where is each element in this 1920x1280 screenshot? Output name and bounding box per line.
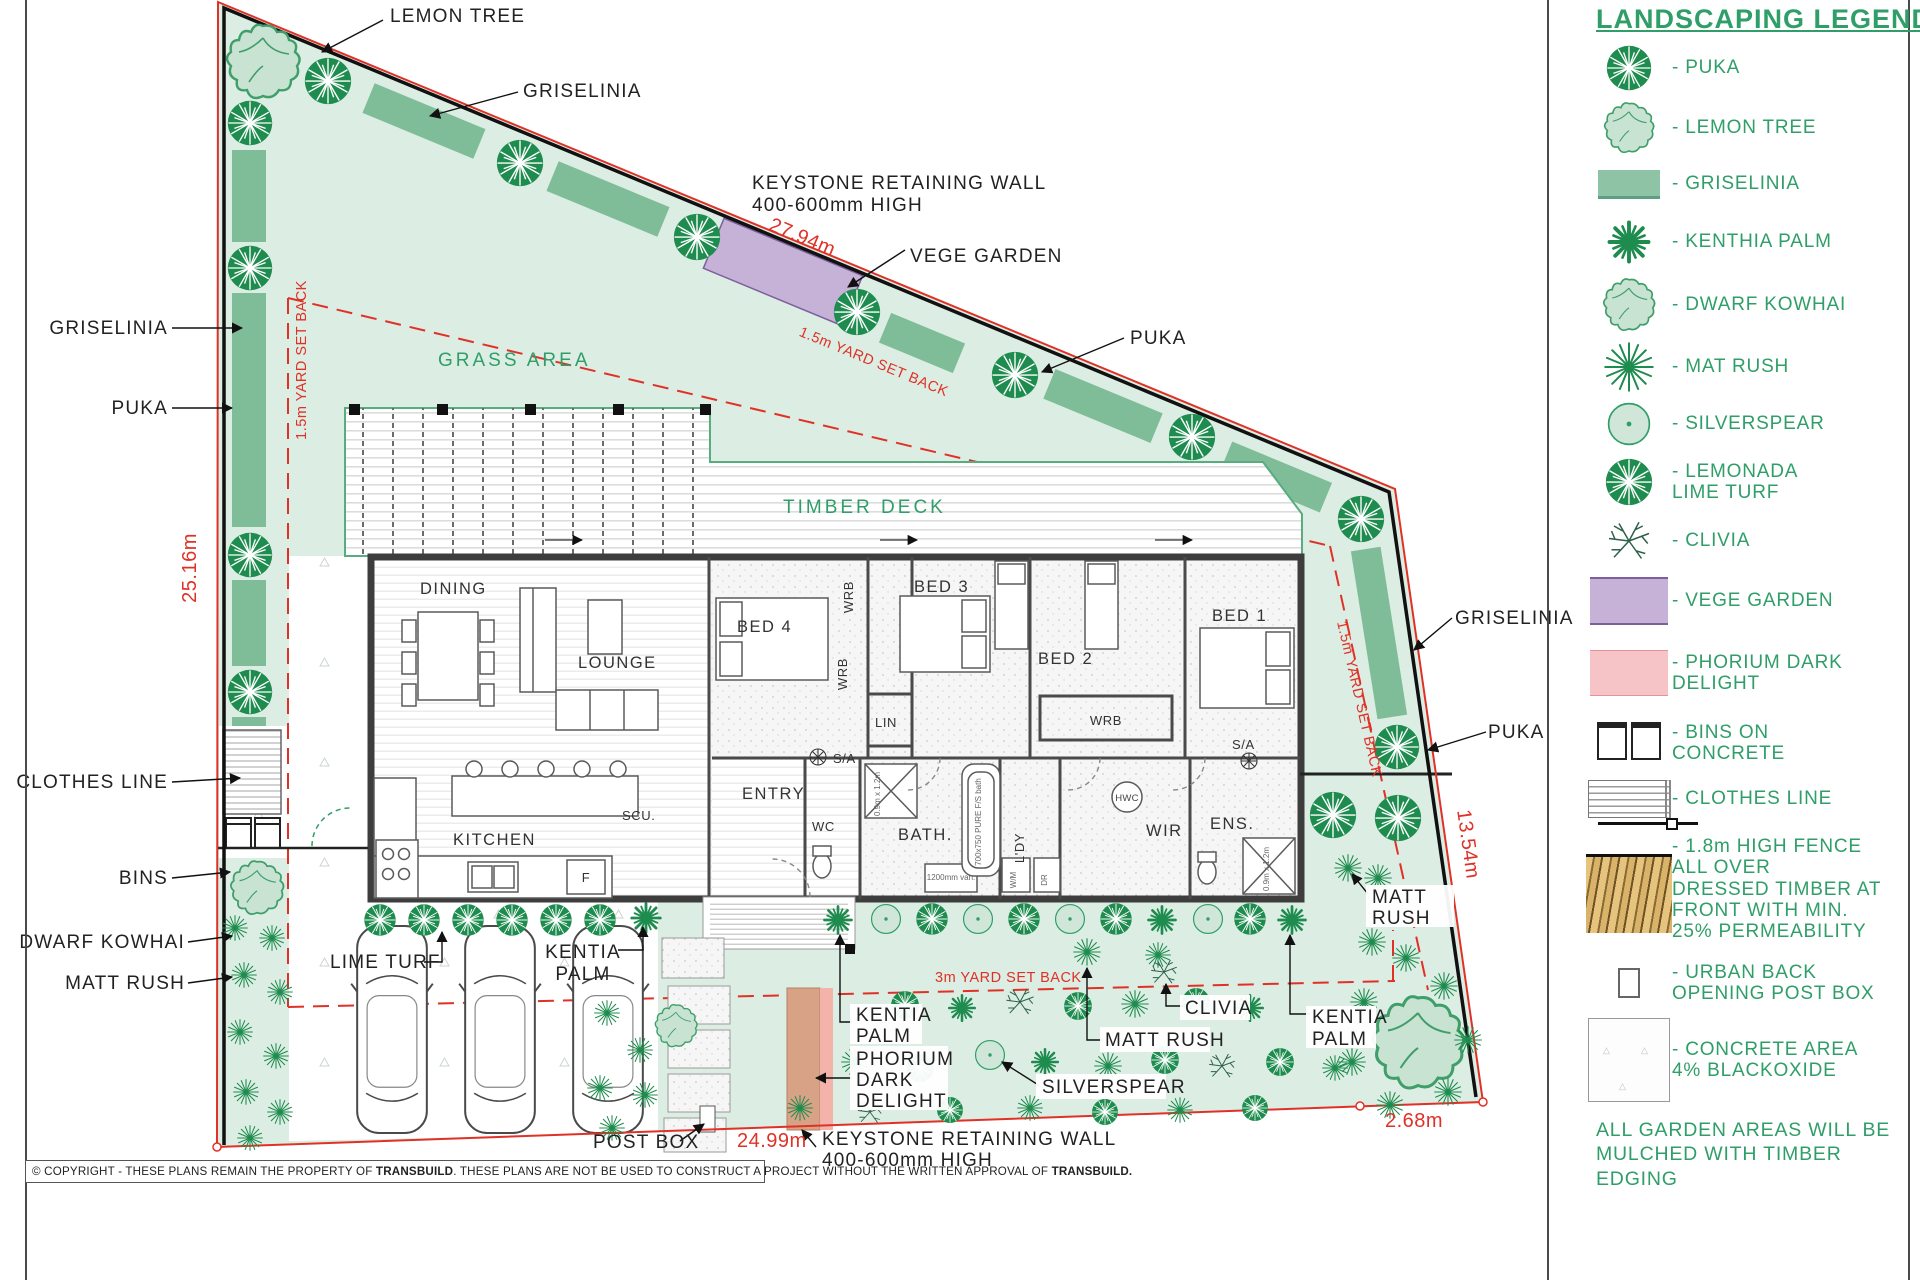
lemonada-icon bbox=[1234, 903, 1265, 934]
puka-tree-icon bbox=[674, 214, 720, 260]
copyright-bar: © COPYRIGHT - THESE PLANS REMAIN THE PRO… bbox=[25, 1160, 765, 1183]
dim-bottom: 24.99m bbox=[737, 1130, 807, 1152]
post-box-callout: POST BOX bbox=[593, 1132, 699, 1153]
phorium-swatch bbox=[1590, 650, 1668, 696]
kentia-garage-callout: KENTIA bbox=[545, 942, 621, 963]
kentia-palm-icon bbox=[949, 995, 975, 1021]
silverspear-icon bbox=[1194, 905, 1223, 934]
legend-footer-note: ALL GARDEN AREAS WILL BE MULCHED WITH TI… bbox=[1596, 1118, 1912, 1191]
mat-rush-icon bbox=[268, 980, 293, 1005]
dim-bottom-right: 2.68m bbox=[1385, 1110, 1443, 1132]
label-hwc: HWC bbox=[1115, 793, 1139, 804]
post-box-icon bbox=[1618, 968, 1640, 998]
legend-item-label: - PUKA bbox=[1672, 57, 1740, 78]
lemon-tree-icon bbox=[1602, 101, 1656, 155]
concrete-swatch: △△△ bbox=[1588, 1018, 1670, 1102]
legend-item-label: - LEMONADA LIME TURF bbox=[1672, 461, 1798, 504]
note-shower-ens: 0.9m x 1.2m bbox=[1262, 847, 1271, 891]
puka-tree-icon bbox=[305, 58, 351, 104]
lemonada-icon bbox=[916, 903, 947, 934]
legend-item-label: - DWARF KOWHAI bbox=[1672, 294, 1846, 315]
keystone-wall-top-callout: KEYSTONE RETAINING WALL bbox=[752, 173, 1046, 194]
legend-item-label: - SILVERSPEAR bbox=[1672, 413, 1825, 434]
keystone-wall-strip bbox=[787, 988, 820, 1130]
keystone-wall-bottom-callout: KEYSTONE RETAINING WALL bbox=[822, 1129, 1116, 1150]
mat-rush-icon bbox=[228, 1020, 253, 1045]
mat-rush-icon bbox=[1393, 945, 1420, 972]
note-vanity: 1200mm van. bbox=[927, 873, 975, 882]
copyright-text: © COPYRIGHT - THESE PLANS REMAIN THE PRO… bbox=[32, 1165, 376, 1178]
lemonada-icon bbox=[584, 904, 615, 935]
puka-right-callout: PUKA bbox=[1488, 722, 1545, 743]
room-label-bed3: BED 3 bbox=[914, 578, 969, 596]
puka-tree-icon bbox=[228, 533, 272, 577]
puka-tree-icon bbox=[1310, 792, 1356, 838]
setback-front-label: 3m YARD SET BACK bbox=[935, 970, 1082, 986]
kenthia-palm-icon bbox=[1603, 216, 1655, 268]
legend-item-label: - LEMON TREE bbox=[1672, 117, 1816, 138]
puka-left-callout: PUKA bbox=[111, 398, 168, 419]
mat-rush-icon bbox=[1455, 1027, 1482, 1054]
mat-rush-icon bbox=[1435, 1079, 1462, 1106]
kentia-palm-icon bbox=[632, 904, 661, 933]
lemonada-icon bbox=[408, 904, 439, 935]
page-border-left bbox=[25, 0, 27, 1280]
lemonada-lime-turf-icon bbox=[1604, 457, 1654, 507]
lemonada-icon bbox=[1092, 1099, 1118, 1125]
mat-rush-icon bbox=[628, 1038, 653, 1063]
puka-tree-icon bbox=[228, 101, 272, 145]
kentia-palm-icon bbox=[1279, 907, 1306, 934]
phorium-callout: PHORIUM bbox=[856, 1049, 954, 1070]
room-label-entry: ENTRY bbox=[742, 785, 805, 803]
legend-item-label: - PHORIUM DARK DELIGHT bbox=[1672, 652, 1843, 695]
vege-garden-callout: VEGE GARDEN bbox=[910, 246, 1063, 267]
mat-rush-icon bbox=[264, 1044, 289, 1069]
mat-rush-icon bbox=[1122, 991, 1149, 1018]
room-label-bed4: BED 4 bbox=[737, 618, 792, 636]
matt-rush-center-callout: MATT RUSH bbox=[1105, 1030, 1225, 1051]
room-label-ldy: L'DY bbox=[1012, 833, 1027, 863]
setback-left-label: 1.5m YARD SET BACK bbox=[294, 280, 310, 440]
label-lin: LIN bbox=[875, 715, 897, 730]
silverspear-icon bbox=[872, 905, 901, 934]
legend-item-label: - CLIVIA bbox=[1672, 530, 1750, 551]
grass-area-label: GRASS AREA bbox=[438, 350, 591, 371]
label-wrb: WRB bbox=[835, 658, 850, 690]
dim-left: 25.16m bbox=[179, 533, 201, 603]
kentia-path-callout: KENTIA bbox=[856, 1005, 932, 1026]
puka-tree-icon bbox=[497, 140, 543, 186]
legend-item-label: - CONCRETE AREA 4% BLACKOXIDE bbox=[1672, 1039, 1858, 1082]
silverspear-icon bbox=[964, 905, 993, 934]
timber-fence-image bbox=[1586, 854, 1672, 933]
lemonada-icon bbox=[364, 904, 395, 935]
phorium-callout3: DELIGHT bbox=[856, 1091, 947, 1112]
dwarf-kowhai-icon bbox=[1601, 277, 1657, 333]
legend-item-label: - BINS ON CONCRETE bbox=[1672, 722, 1785, 765]
mat-rush-icon bbox=[1146, 943, 1171, 968]
phorium-callout2: DARK bbox=[856, 1070, 914, 1091]
room-label-kitchen: KITCHEN bbox=[453, 831, 536, 849]
room-label-wc: WC bbox=[812, 819, 835, 834]
label-fridge: F bbox=[582, 870, 591, 885]
puka-tree-icon bbox=[228, 246, 272, 290]
lime-turf-callout: LIME TURF bbox=[330, 952, 441, 973]
mat-rush-icon bbox=[1018, 1096, 1043, 1121]
griselinia-top-callout: GRISELINIA bbox=[523, 81, 642, 102]
legend-title: LANDSCAPING LEGEND bbox=[1596, 4, 1920, 35]
clothes-line-plan bbox=[223, 730, 281, 814]
kentia-right-callout: KENTIA bbox=[1312, 1007, 1388, 1028]
dining-furniture bbox=[402, 612, 494, 706]
puka-tree-icon bbox=[1375, 795, 1421, 841]
room-label-wir: WIR bbox=[1146, 822, 1183, 840]
room-label-bed2: BED 2 bbox=[1038, 650, 1093, 668]
kentia-palm-icon bbox=[825, 907, 852, 934]
clivia-icon bbox=[1604, 516, 1654, 566]
lemon-tree-callout: LEMON TREE bbox=[390, 6, 525, 27]
room-label-bath: BATH. bbox=[898, 826, 953, 844]
copyright-brand: TRANSBUILD. bbox=[1052, 1165, 1133, 1178]
mat-rush-icon bbox=[788, 1096, 813, 1121]
fence-line-icon bbox=[1598, 822, 1698, 825]
kentia-palm-icon bbox=[1032, 1049, 1058, 1075]
legend-item-label: - CLOTHES LINE bbox=[1672, 788, 1832, 809]
silverspear-icon bbox=[1605, 400, 1653, 448]
mat-rush-icon bbox=[1074, 939, 1101, 966]
puka-tree-icon bbox=[992, 352, 1038, 398]
fence-post-icon bbox=[1666, 818, 1678, 830]
note-shower: 0.9m x 1.2m bbox=[873, 772, 882, 816]
room-label-scu: SCU. bbox=[622, 808, 655, 823]
matt-rush-right-callout: MATT bbox=[1372, 887, 1427, 908]
mat-rush-icon bbox=[268, 1100, 293, 1125]
mat-rush-icon bbox=[633, 1083, 658, 1108]
silverspear-icon bbox=[976, 1041, 1005, 1070]
mat-rush-icon bbox=[232, 963, 257, 988]
post-box-plan bbox=[700, 1106, 715, 1132]
silverspear-callout: SILVERSPEAR bbox=[1042, 1077, 1186, 1098]
legend-item-label: - VEGE GARDEN bbox=[1672, 590, 1833, 611]
copyright-text: . THESE PLANS ARE NOT BE USED TO CONSTRU… bbox=[453, 1165, 1051, 1178]
dwarf-kowhai-callout: DWARF KOWHAI bbox=[19, 932, 185, 953]
mat-rush-icon bbox=[234, 1080, 259, 1105]
lemonada-icon bbox=[1100, 903, 1131, 934]
porch-post bbox=[845, 944, 855, 954]
dim-right: 13.54m bbox=[1452, 808, 1483, 880]
kentia-palm-icon bbox=[1149, 907, 1176, 934]
room-label-ens: ENS. bbox=[1210, 815, 1255, 833]
clivia-callout: CLIVIA bbox=[1185, 998, 1252, 1019]
griselinia-right-callout: GRISELINIA bbox=[1455, 608, 1574, 629]
puka-tree-icon bbox=[228, 670, 272, 714]
mat-rush-icon bbox=[588, 1076, 613, 1101]
legend-item-label: - URBAN BACK OPENING POST BOX bbox=[1672, 962, 1875, 1005]
pergola-joists bbox=[345, 408, 710, 556]
room-label-bed1: BED 1 bbox=[1212, 607, 1267, 625]
mat-rush-icon bbox=[1335, 855, 1362, 882]
puka-top-callout: PUKA bbox=[1130, 328, 1187, 349]
mat-rush-icon bbox=[595, 1001, 620, 1026]
mat-rush-icon bbox=[1604, 342, 1654, 392]
lemonada-icon bbox=[1008, 903, 1039, 934]
griselinia-left-callout: GRISELINIA bbox=[49, 318, 168, 339]
lemonada-icon bbox=[452, 904, 483, 935]
kentia-garage-callout2: PALM bbox=[555, 964, 610, 985]
lemonada-icon bbox=[1064, 992, 1092, 1020]
label-dr: DR bbox=[1040, 874, 1049, 886]
landscaping-legend: LANDSCAPING LEGEND - PUKA - LEMON TREE -… bbox=[1560, 0, 1912, 1280]
room-label-dining: DINING bbox=[420, 580, 487, 598]
label-sa: S/A bbox=[1232, 737, 1255, 752]
clothes-line-icon bbox=[1588, 780, 1671, 818]
lemonada-icon bbox=[540, 904, 571, 935]
legend-item-label: - 1.8m HIGH FENCE ALL OVER DRESSED TIMBE… bbox=[1672, 836, 1881, 942]
legend-item-label: - KENTHIA PALM bbox=[1672, 231, 1832, 252]
label-wm: W/M bbox=[1009, 871, 1018, 888]
mat-rush-icon bbox=[1359, 929, 1386, 956]
phorium-strip bbox=[820, 988, 833, 1130]
bins-icon bbox=[1595, 722, 1663, 765]
vege-garden-swatch bbox=[1590, 577, 1668, 625]
copyright-brand: TRANSBUILD bbox=[376, 1165, 453, 1178]
clothes-line-callout: CLOTHES LINE bbox=[16, 772, 168, 793]
timber-deck-label: TIMBER DECK bbox=[783, 497, 946, 518]
matt-rush-left-callout: MATT RUSH bbox=[65, 973, 185, 994]
griselinia-swatch bbox=[1598, 170, 1660, 199]
lemonada-icon bbox=[1242, 1095, 1268, 1121]
mat-rush-icon bbox=[238, 1126, 263, 1151]
silverspear-icon bbox=[1056, 905, 1085, 934]
mat-rush-icon bbox=[260, 926, 285, 951]
puka-icon bbox=[1605, 44, 1653, 92]
label-sa: S/A bbox=[833, 751, 856, 766]
landscaping-plan-page: GRASS AREA TIMBER DECK LEMON TREE GRISEL… bbox=[0, 0, 1920, 1280]
plan-legend-divider bbox=[1547, 0, 1549, 1280]
note-bath: 700x750 PURE F/S bath bbox=[974, 778, 983, 866]
mat-rush-icon bbox=[1339, 1049, 1366, 1076]
puka-tree-icon bbox=[834, 289, 880, 335]
matt-rush-right-callout2: RUSH bbox=[1372, 908, 1431, 929]
bins-callout: BINS bbox=[119, 868, 168, 889]
mat-rush-icon bbox=[1431, 973, 1458, 1000]
lemonada-icon bbox=[1266, 1048, 1294, 1076]
legend-item-label: - MAT RUSH bbox=[1672, 356, 1789, 377]
kentia-right-callout2: PALM bbox=[1312, 1029, 1367, 1050]
kentia-path-callout2: PALM bbox=[856, 1026, 911, 1047]
room-label-lounge: LOUNGE bbox=[578, 654, 657, 672]
mat-rush-icon bbox=[1168, 1098, 1193, 1123]
mat-rush-icon bbox=[1323, 1056, 1348, 1081]
label-wrb: WRB bbox=[1090, 713, 1122, 728]
label-wrb: WRB bbox=[841, 581, 856, 613]
puka-tree-icon bbox=[1169, 414, 1215, 460]
legend-item-label: - GRISELINIA bbox=[1672, 173, 1800, 194]
puka-tree-icon bbox=[1338, 496, 1384, 542]
keystone-wall-top-callout2: 400-600mm HIGH bbox=[752, 195, 923, 216]
lemonada-icon bbox=[496, 904, 527, 935]
